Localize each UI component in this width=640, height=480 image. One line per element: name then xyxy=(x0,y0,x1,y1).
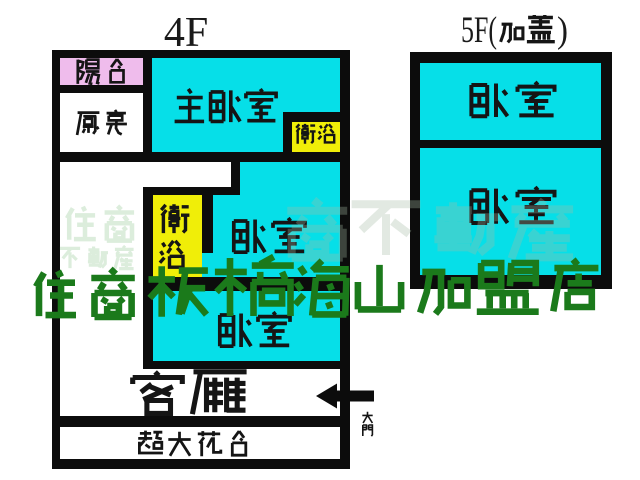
svg-text:): ) xyxy=(557,10,568,51)
svg-text:5F(: 5F( xyxy=(461,10,497,51)
svg-text:4F: 4F xyxy=(164,10,208,56)
